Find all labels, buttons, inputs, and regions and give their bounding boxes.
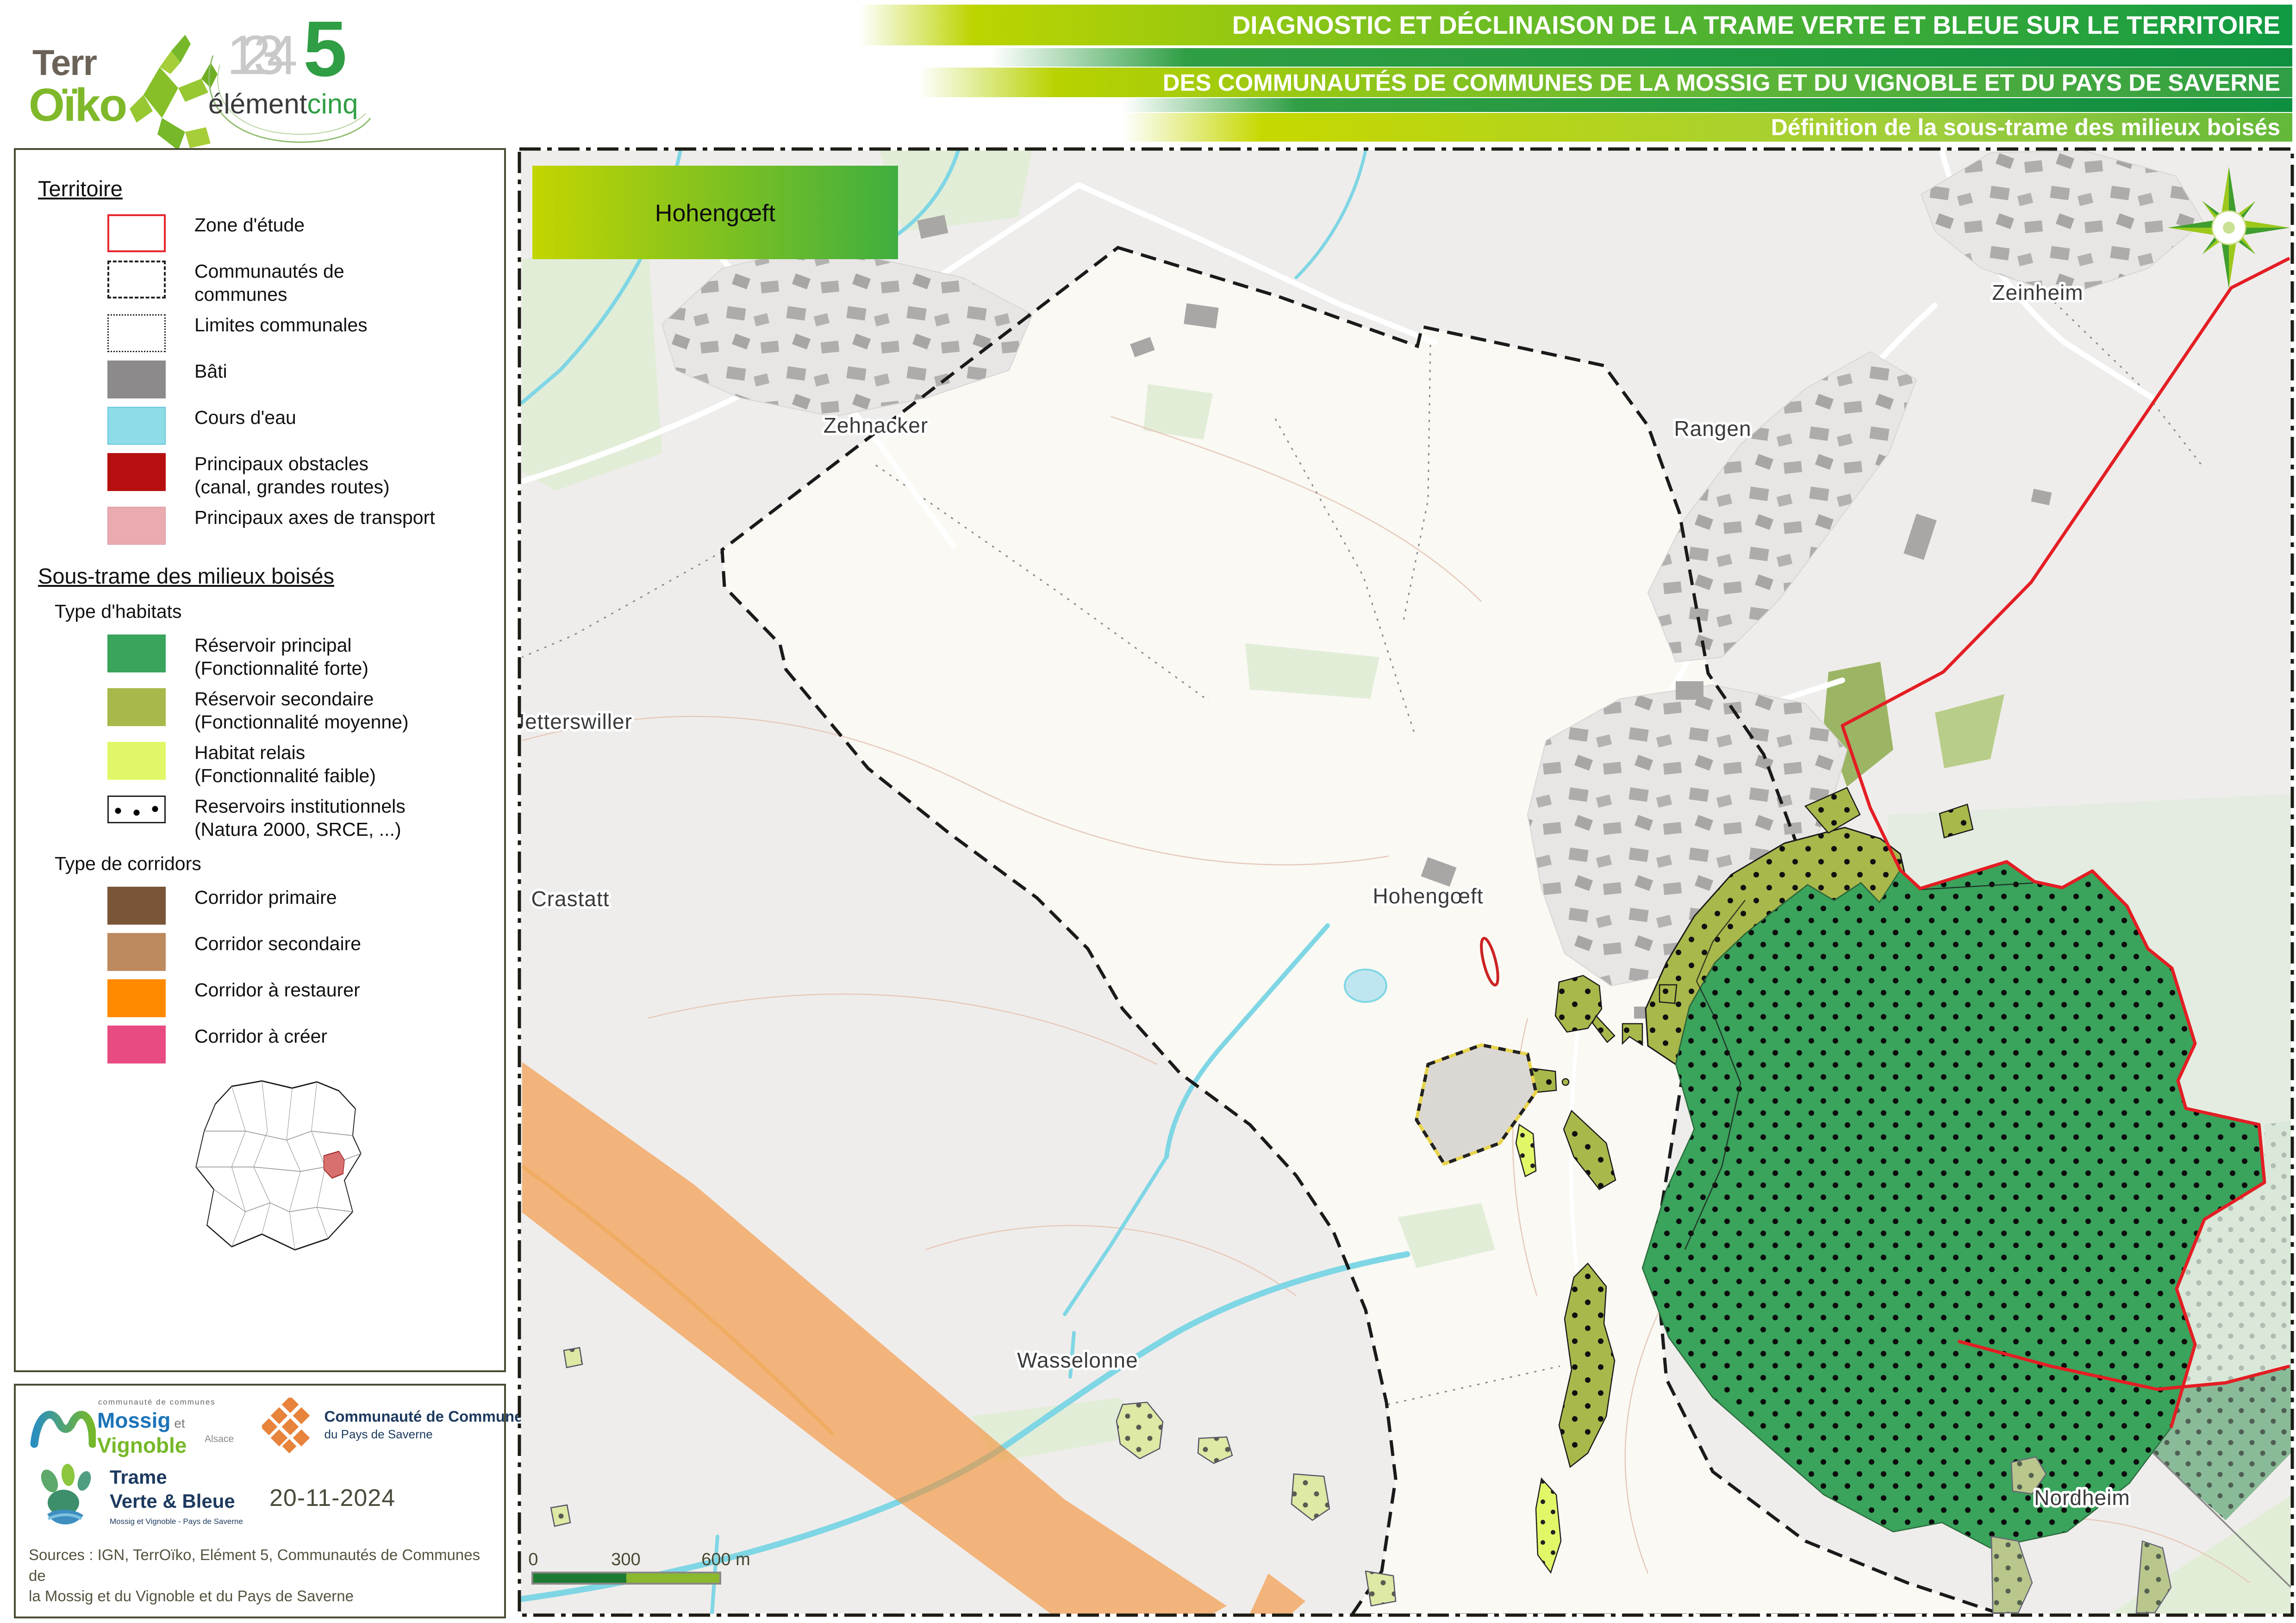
scale-0: 0 <box>528 1550 538 1569</box>
label-jetterswiller: Jetterswiller <box>514 709 632 734</box>
label-zeinheim: Zeinheim <box>1992 280 2083 305</box>
scale-300: 300 <box>611 1550 640 1569</box>
label-hohengoeft: Hohengœft <box>1373 884 1483 908</box>
scale-600: 600 m <box>701 1550 750 1569</box>
label-zehnacker: Zehnacker <box>824 413 928 437</box>
map-title-text: Hohengœft <box>655 200 776 227</box>
label-rangen: Rangen <box>1674 417 1751 441</box>
label-nordheim: Nordheim <box>2034 1486 2130 1510</box>
map-poster-page: Terr Oïko 1234 5 élémentcinq DIAGNOSTIC … <box>0 0 2296 1623</box>
pond <box>1345 970 1386 1002</box>
label-wasselonne: Wasselonne <box>1017 1348 1138 1372</box>
map-canvas: Zehnacker Zeinheim Rangen Jetterswiller … <box>0 0 2296 1623</box>
map-title-box: Hohengœft <box>532 166 898 259</box>
label-crastatt: Crastatt <box>531 887 609 911</box>
